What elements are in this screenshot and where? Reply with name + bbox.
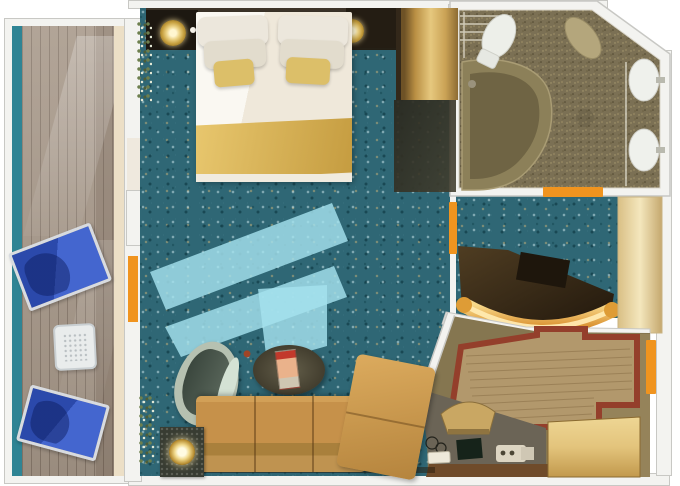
entry-floor-light [575, 334, 650, 477]
accent-pillow [213, 58, 255, 87]
dressing-doorway [449, 202, 457, 254]
plant [137, 22, 152, 102]
desk [394, 100, 456, 192]
lounge-chair-cushion [19, 239, 84, 302]
inlaid-wood-floor [452, 329, 637, 442]
entry-bench-base [448, 429, 489, 434]
double-bed [196, 12, 352, 180]
table-lamp-icon [169, 439, 195, 465]
bathroom-doorway [543, 187, 603, 197]
sink [629, 59, 659, 101]
entry-floor [426, 316, 650, 477]
gold-runner [196, 118, 352, 180]
balcony-glass-door [127, 138, 140, 190]
wood-planks [466, 349, 632, 420]
bathroom-floor [459, 10, 660, 188]
towel [521, 447, 534, 460]
entryway [420, 314, 650, 477]
cushion-seam [312, 396, 314, 472]
floor-drain [576, 109, 594, 127]
dressing-area-carpet [456, 196, 622, 318]
bathtub-basin [470, 72, 539, 179]
cushion-seam [254, 396, 256, 472]
balcony-door-curtain [128, 256, 138, 322]
cushion-seam [346, 412, 425, 429]
entry-door [646, 340, 656, 394]
right-outer-wall [656, 50, 672, 476]
sink [629, 129, 659, 171]
balcony-table [53, 323, 97, 371]
bathtub [462, 60, 552, 190]
entry-wardrobe [548, 417, 640, 477]
magazine [275, 349, 301, 390]
gold-wardrobe [396, 8, 458, 100]
lamp-side-table [160, 427, 204, 477]
accent-pillow [285, 57, 330, 85]
floorplan-stage [0, 0, 680, 486]
coffee-table [253, 345, 325, 395]
tv-screen [456, 438, 483, 460]
bidet [558, 11, 608, 65]
shower-rails [460, 12, 512, 58]
toilet [471, 9, 522, 72]
plant [139, 396, 155, 464]
towel-swirl-icon [510, 451, 515, 456]
lounge-chair-cushion [26, 393, 83, 448]
balcony-table-top [62, 332, 87, 361]
towel-swirl-icon [501, 451, 506, 456]
bathroom [450, 1, 670, 196]
wall-lamp-icon [160, 20, 186, 46]
sheet-edge [196, 174, 352, 182]
bathroom-walls [450, 1, 670, 196]
towel-roll [496, 445, 526, 462]
tub-faucet-icon [468, 80, 476, 88]
